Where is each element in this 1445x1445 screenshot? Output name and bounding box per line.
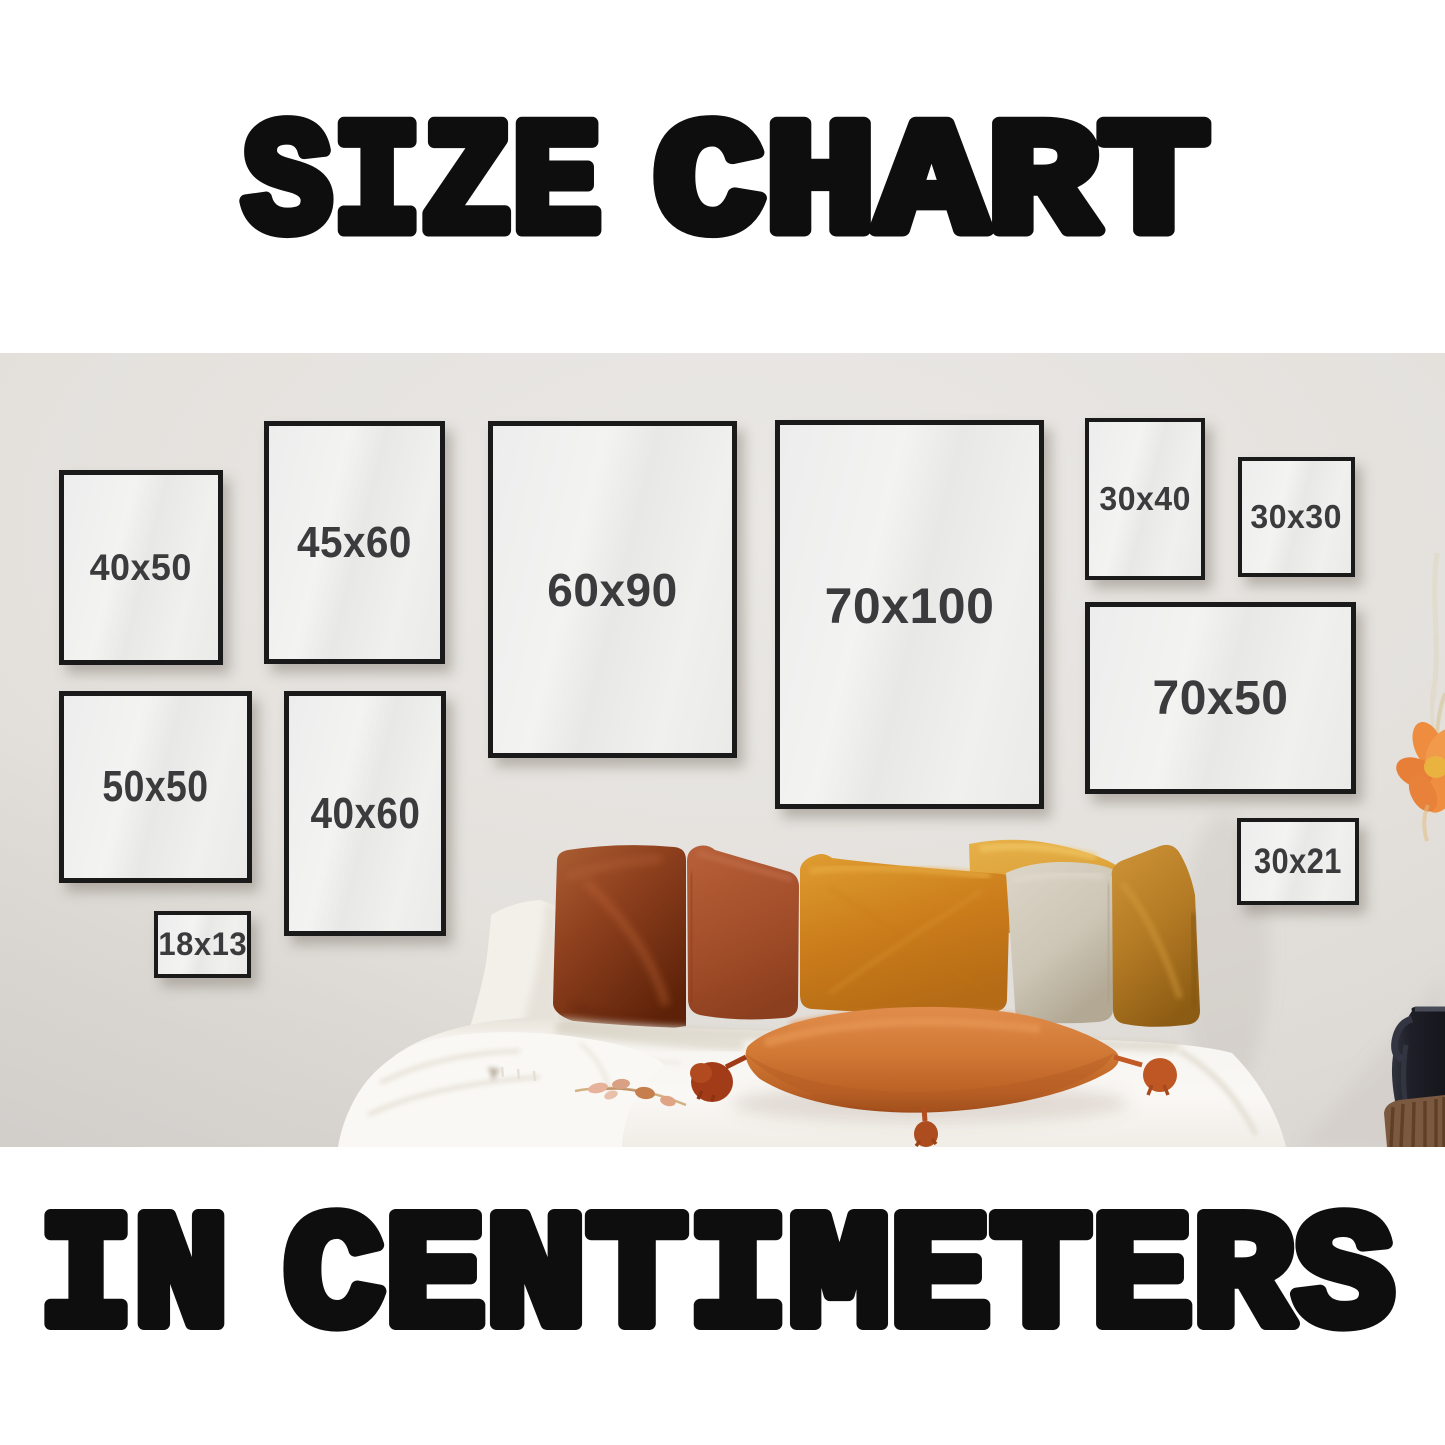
svg-text:SIZECHART: SIZECHART — [243, 95, 1210, 279]
svg-text:INCENTIMETERS: INCENTIMETERS — [39, 1188, 1395, 1374]
